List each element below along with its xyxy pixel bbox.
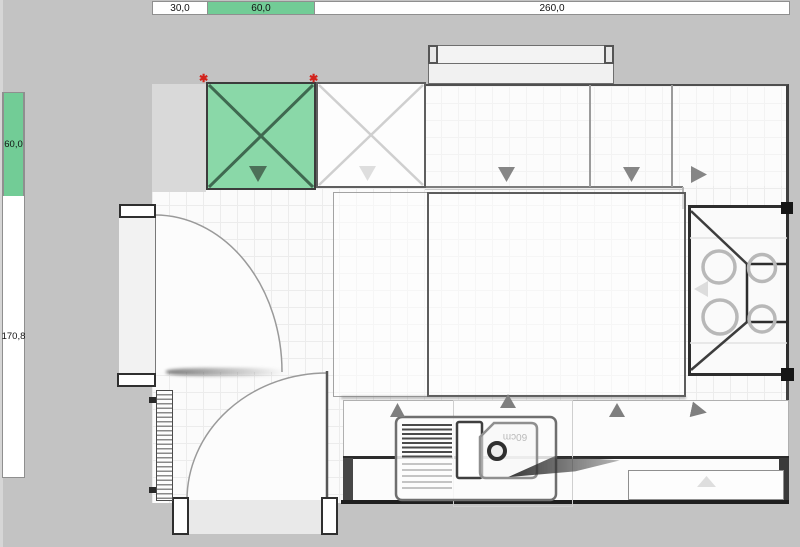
top-counter-run[interactable] [425, 86, 786, 186]
hob-corner-unit[interactable] [688, 205, 789, 376]
dimension-label: 170,8 [2, 331, 26, 342]
counter-run-divider [589, 85, 591, 187]
planner-canvas[interactable]: 60cm ✱ ✱ [0, 0, 800, 547]
door-bottom[interactable] [182, 368, 332, 504]
sink-size-label: 60cm [503, 431, 527, 442]
sink-unit[interactable]: 60cm [394, 414, 560, 504]
doorway-opening-bottom [189, 500, 321, 534]
dimension-label: 260,0 [539, 3, 564, 14]
door-left[interactable] [150, 210, 290, 380]
island-shadow [341, 396, 686, 399]
door-jamb [321, 497, 338, 535]
doorway-opening-left [119, 216, 155, 375]
selection-marker-icon[interactable]: ✱ [309, 74, 318, 85]
sink-tap [457, 422, 482, 478]
counter-run-shadow [425, 189, 683, 190]
door-jamb [172, 497, 189, 535]
window-sill [436, 45, 606, 64]
dimension-label: 60,0 [4, 139, 23, 150]
radiator-mount [149, 487, 156, 493]
counter-end-panel-left [343, 458, 353, 502]
dimension-label: 30,0 [170, 3, 189, 14]
door-swing-area [155, 215, 282, 372]
dimension-label: 60,0 [251, 3, 270, 14]
window-end-cap [604, 45, 614, 64]
wall-post [781, 202, 793, 214]
wall-post [781, 368, 794, 381]
door-swing-area [187, 373, 327, 500]
ruler-segment[interactable]: 30,0 [153, 2, 207, 14]
ruler-left: 60,0 170,8 [2, 92, 25, 478]
counter-run-front-edge [425, 186, 683, 188]
radiator-mount [149, 397, 156, 403]
sink-drain [489, 443, 505, 459]
ruler-segment[interactable]: 170,8 [3, 196, 24, 477]
counter-run-divider [671, 85, 673, 187]
window-frame-lower[interactable] [428, 63, 614, 84]
door-jamb [119, 204, 156, 218]
ruler-segment-selected[interactable]: 60,0 [207, 2, 315, 14]
island-worktop-outline [427, 192, 686, 397]
window-end-cap [428, 45, 438, 64]
door-jamb [117, 373, 156, 387]
ruler-segment-selected[interactable]: 60,0 [3, 93, 24, 196]
floor-shadow-region [152, 84, 206, 192]
ruler-top: 30,0 60,0 260,0 [152, 1, 790, 15]
ruler-segment[interactable]: 260,0 [315, 2, 789, 14]
selection-marker-icon[interactable]: ✱ [199, 74, 208, 85]
radiator[interactable] [156, 390, 173, 501]
